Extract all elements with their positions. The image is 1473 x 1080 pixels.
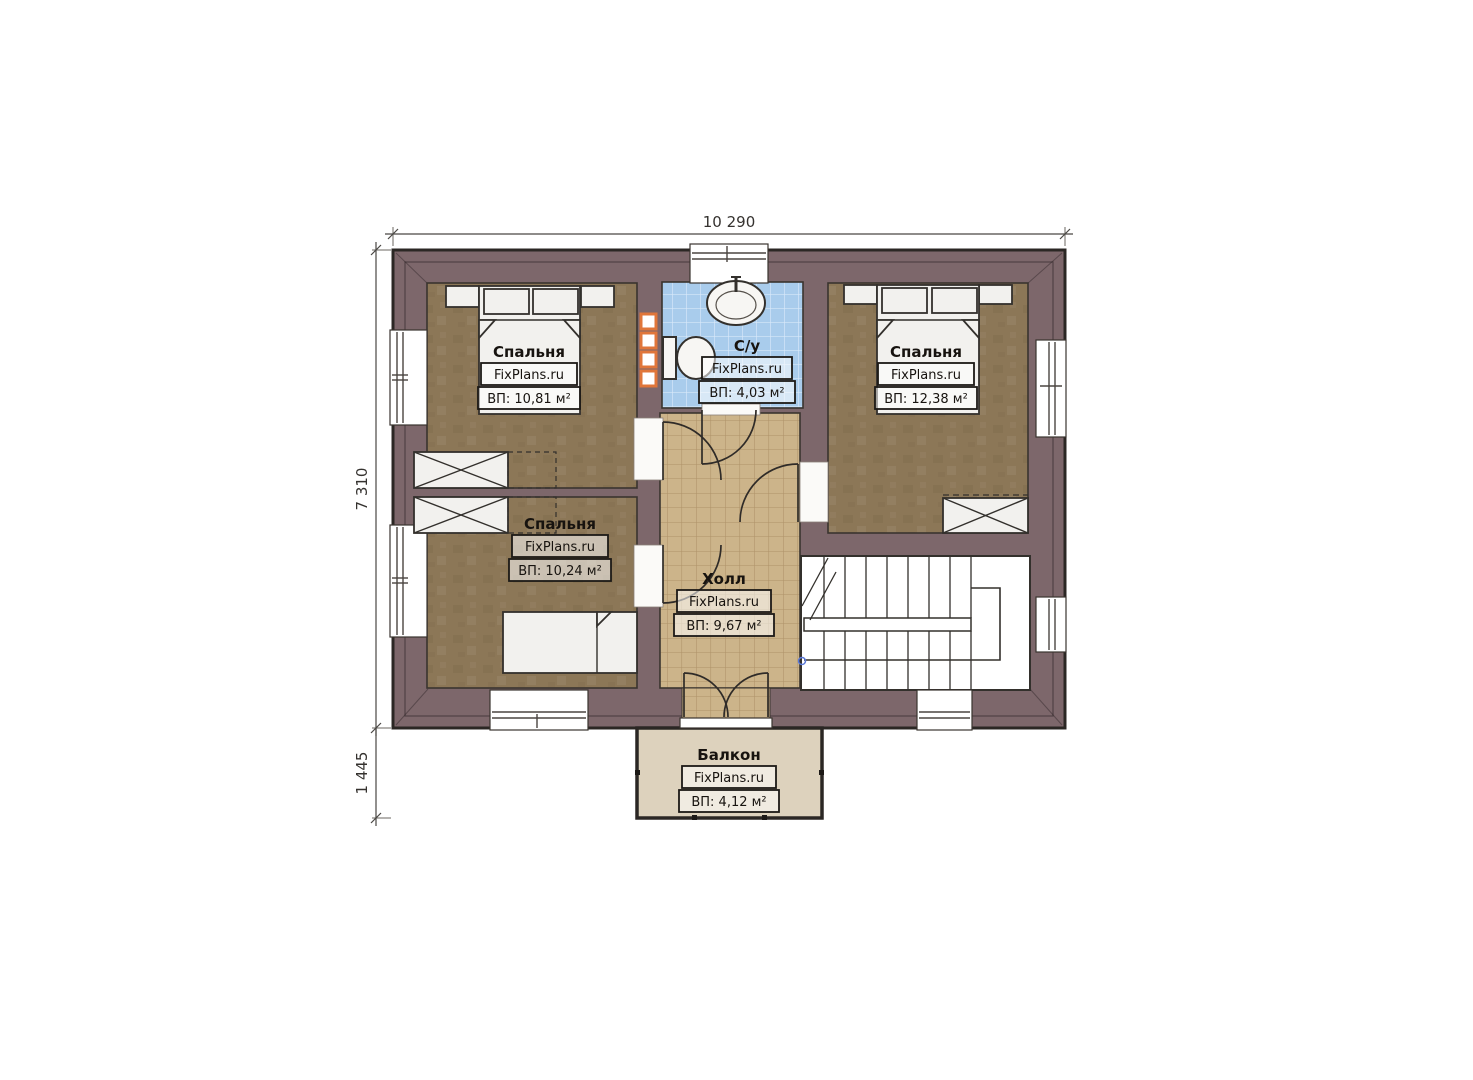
- doorway-bedroom-bottom-left: [634, 545, 663, 607]
- label-bedroom-top-left: Спальня FixPlans.ru ВП: 10,81 м²: [478, 343, 580, 409]
- room-name: Спальня: [890, 343, 962, 361]
- doorway-bathroom: [702, 404, 760, 415]
- window-left-top: [390, 330, 427, 425]
- floor-plan-page: Спальня FixPlans.ru ВП: 10,81 м² С/у Fix…: [0, 0, 1473, 1080]
- dimension-top-width: 10 290: [385, 213, 1073, 246]
- balcony-door-sill: [680, 718, 772, 728]
- brand-watermark: FixPlans.ru: [712, 362, 782, 377]
- room-name: Спальня: [524, 515, 596, 533]
- brand-watermark: FixPlans.ru: [891, 368, 961, 383]
- room-area: ВП: 9,67 м²: [686, 619, 761, 634]
- dimension-height-main: 7 310: [353, 468, 371, 511]
- room-area: ВП: 4,12 м²: [691, 795, 766, 810]
- room-name: С/у: [734, 337, 760, 355]
- window-top-bathroom: [690, 244, 768, 283]
- brand-watermark: FixPlans.ru: [694, 771, 764, 786]
- dimension-width-total: 10 290: [703, 213, 756, 231]
- dimension-left-balcony: 1 445: [353, 728, 391, 826]
- room-area: ВП: 12,38 м²: [884, 392, 968, 407]
- stair-handrail: [804, 618, 971, 631]
- brand-watermark: FixPlans.ru: [525, 540, 595, 555]
- window-left-bottom: [390, 525, 427, 637]
- window-bottom-right: [917, 690, 972, 730]
- dimension-left-main: 7 310: [353, 242, 391, 736]
- room-area: ВП: 10,24 м²: [518, 564, 602, 579]
- brand-watermark: FixPlans.ru: [494, 368, 564, 383]
- wardrobe-icon-top-right: [943, 495, 1028, 533]
- doorway-bedroom-top-right: [800, 462, 828, 522]
- doorway-bedroom-top-left: [634, 418, 663, 480]
- window-right-bedroom: [1036, 340, 1066, 437]
- brand-watermark: FixPlans.ru: [689, 595, 759, 610]
- dimension-height-balcony: 1 445: [353, 752, 371, 795]
- window-right-stairs: [1036, 597, 1066, 652]
- room-area: ВП: 4,03 м²: [709, 386, 784, 401]
- room-name: Холл: [702, 570, 746, 588]
- floor-plan-drawing: Спальня FixPlans.ru ВП: 10,81 м² С/у Fix…: [0, 0, 1473, 1080]
- window-bottom-left: [490, 690, 588, 730]
- hall-floor: [660, 413, 800, 688]
- room-name: Балкон: [697, 746, 760, 764]
- room-area: ВП: 10,81 м²: [487, 392, 571, 407]
- single-bed-icon-bottom-left: [503, 612, 637, 673]
- label-bedroom-top-right: Спальня FixPlans.ru ВП: 12,38 м²: [875, 343, 977, 409]
- label-bedroom-bottom-left: Спальня FixPlans.ru ВП: 10,24 м²: [509, 515, 611, 581]
- room-name: Спальня: [493, 343, 565, 361]
